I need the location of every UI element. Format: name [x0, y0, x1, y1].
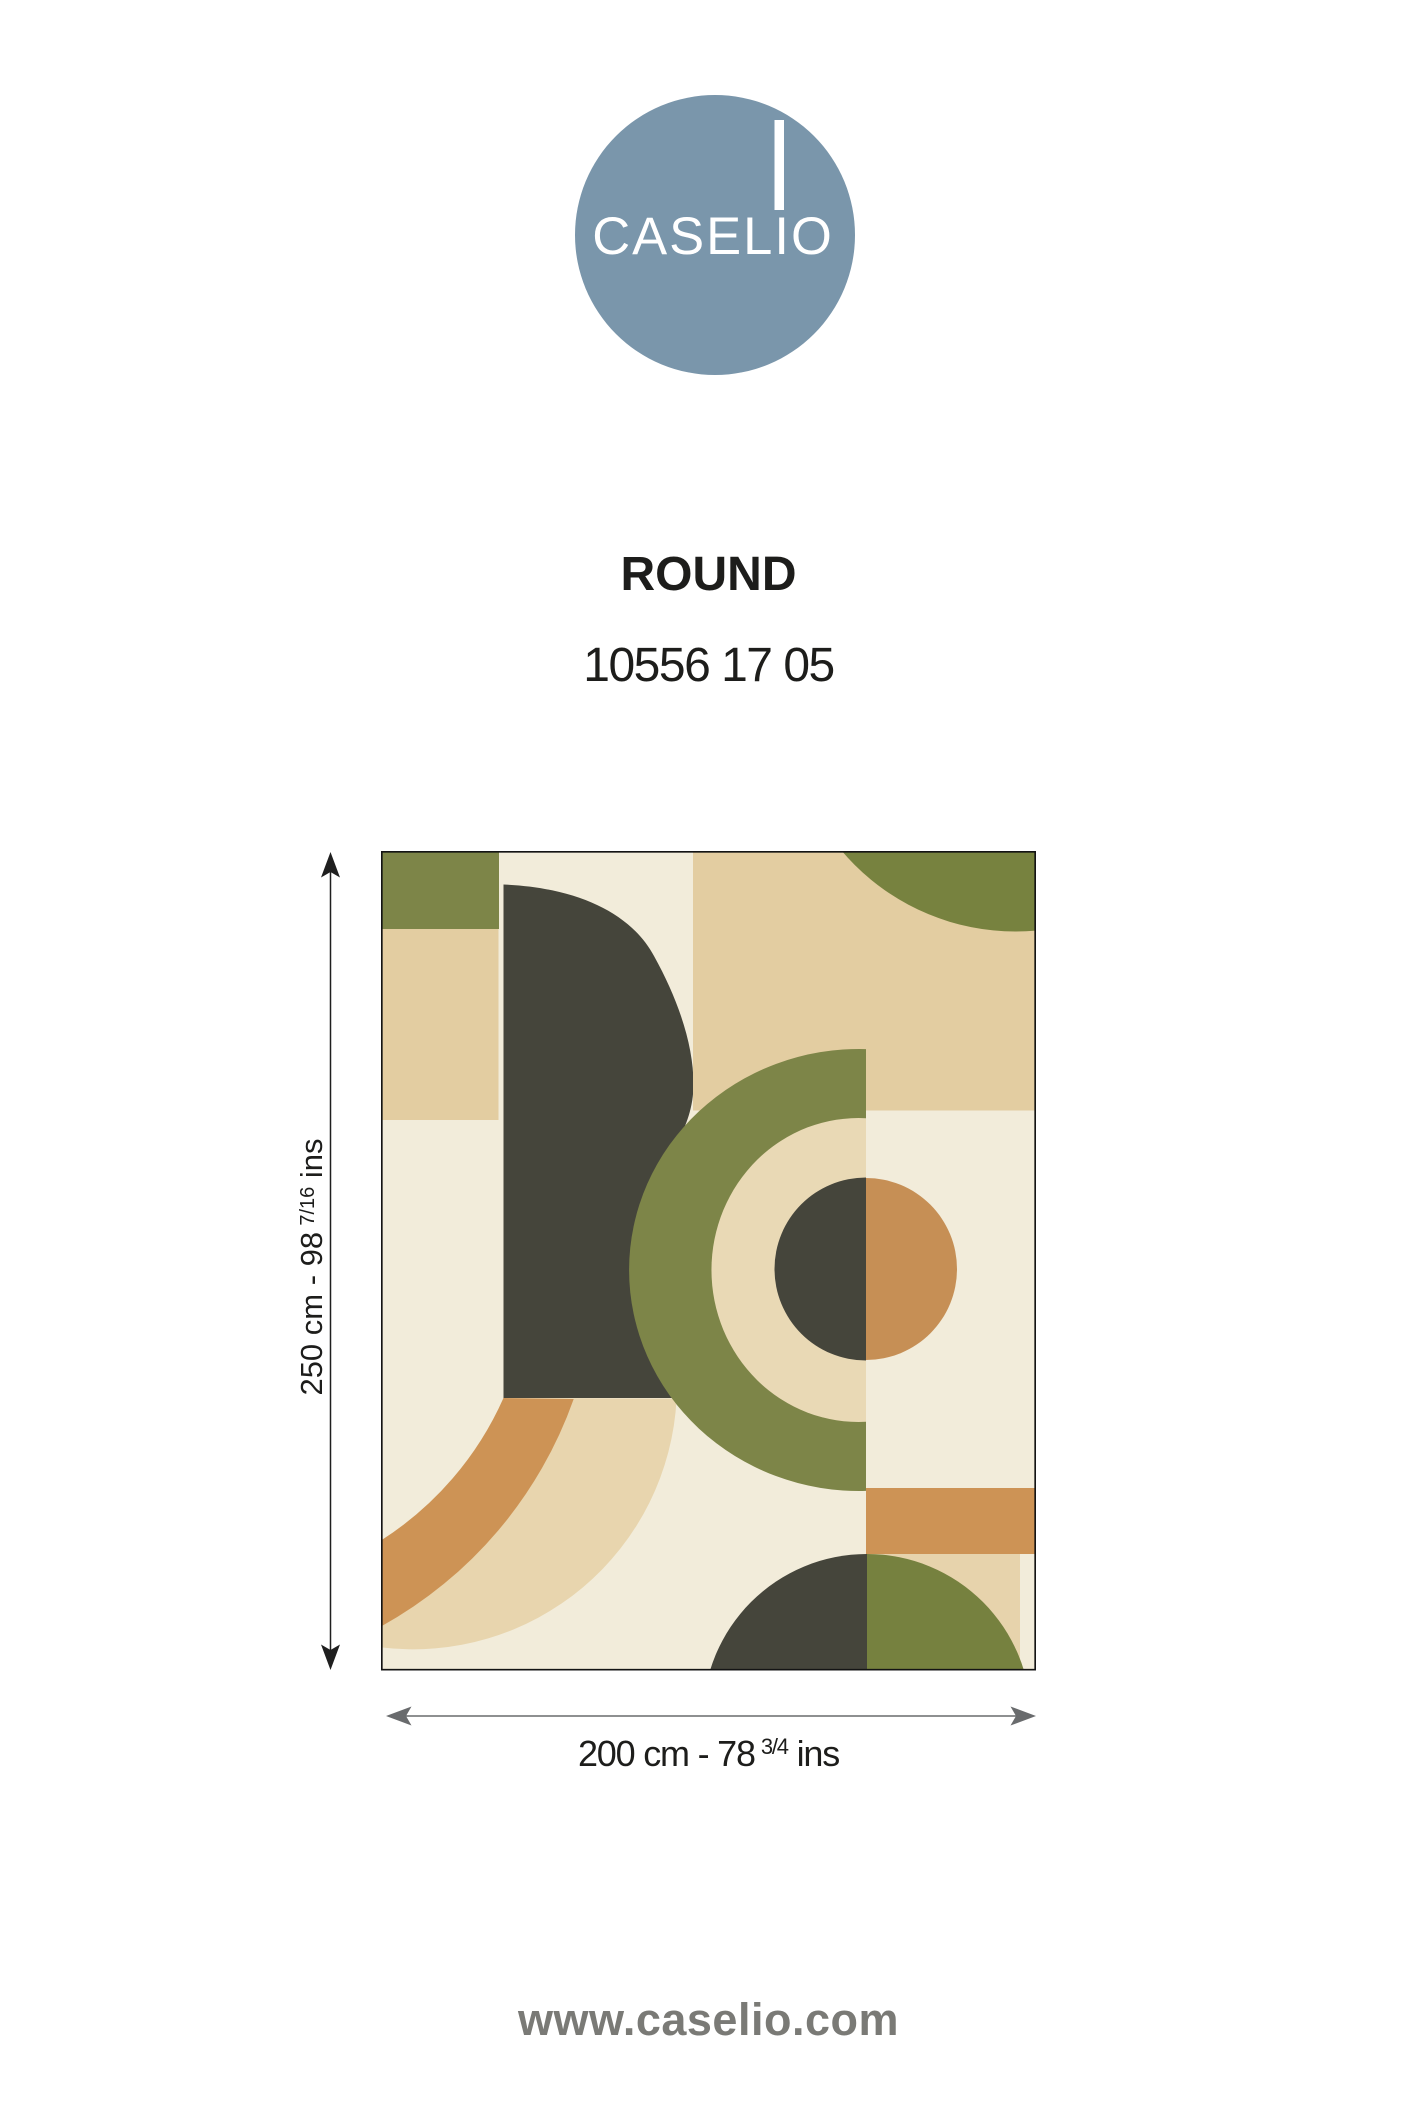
svg-text:CASELIO: CASELIO	[592, 207, 834, 266]
